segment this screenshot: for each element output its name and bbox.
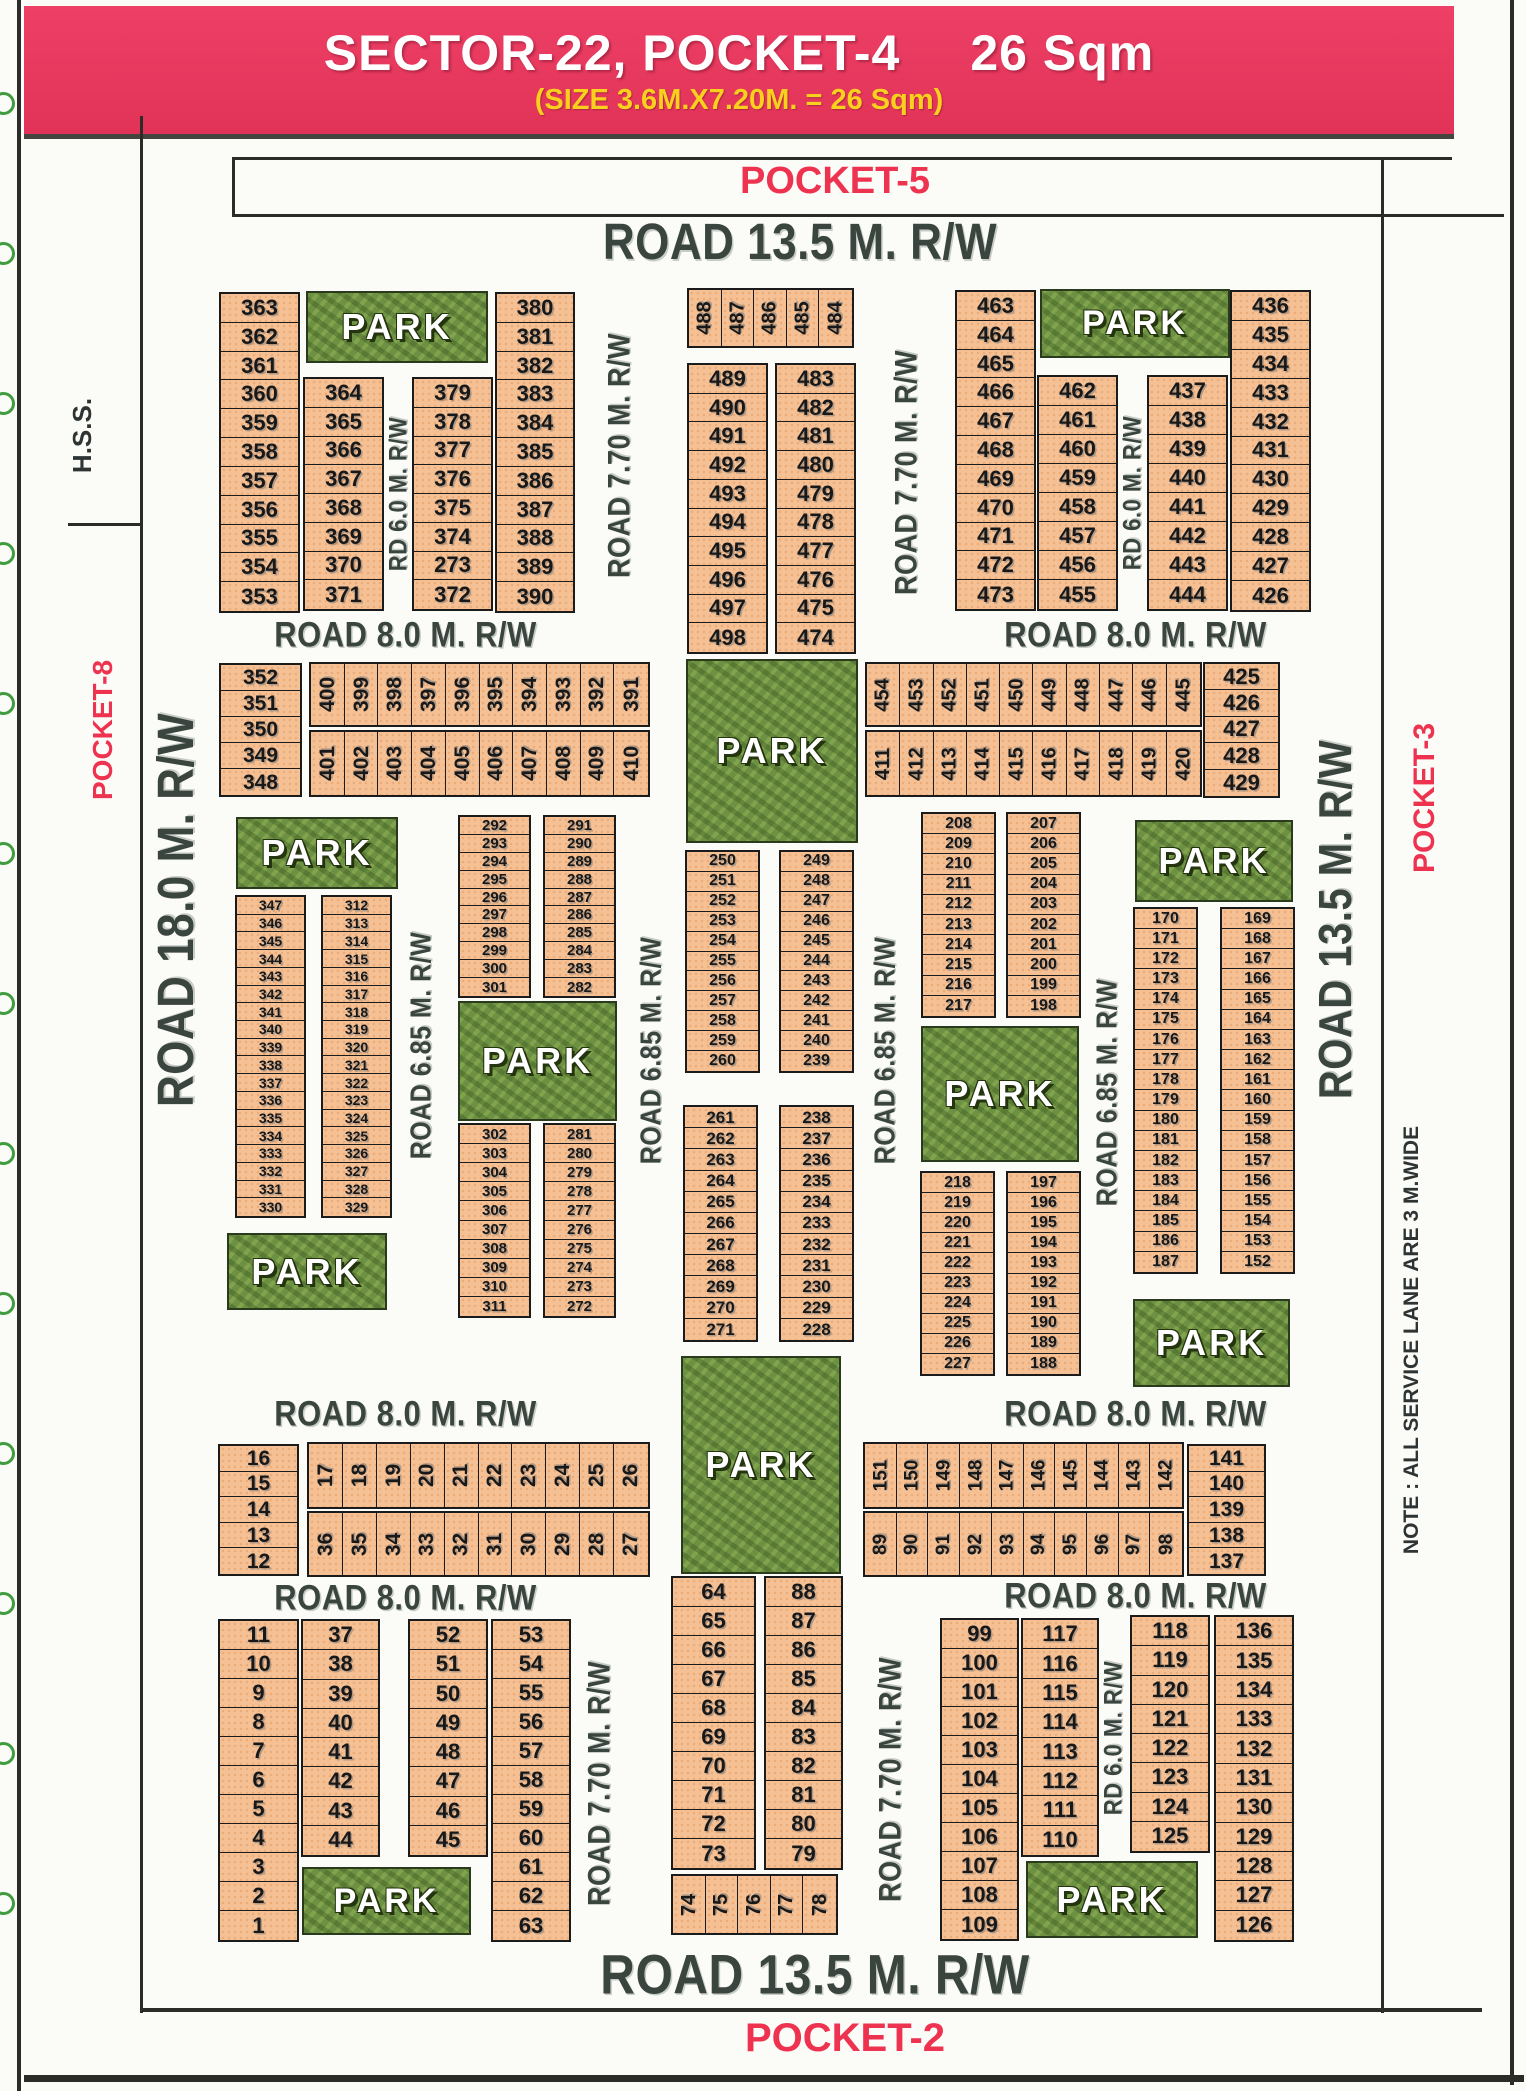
plot-block: 3473463453443433423413403393383373363353… [235, 895, 306, 1218]
plot-block: 89909192939495969798 [863, 1511, 1184, 1577]
plot-204: 204 [1008, 875, 1079, 895]
plot-number: 164 [1244, 1011, 1271, 1027]
plot-number: 415 [1006, 747, 1026, 780]
plot-number: 411 [873, 747, 893, 779]
plot-67: 67 [673, 1665, 754, 1694]
plot-110: 110 [1023, 1826, 1097, 1855]
plot-292: 292 [460, 817, 529, 835]
plot-number: 188 [1030, 1356, 1057, 1372]
plot-number: 179 [1152, 1092, 1179, 1108]
plot-number: 169 [1244, 911, 1271, 927]
plot-number: 9 [252, 1682, 264, 1704]
plot-number: 465 [977, 353, 1014, 375]
plot-409: 409 [581, 732, 615, 795]
plot-number: 336 [259, 1093, 282, 1107]
plot-number: 140 [1209, 1473, 1244, 1494]
plot-number: 186 [1152, 1233, 1179, 1249]
plot-number: 214 [945, 937, 972, 953]
plot-428: 428 [1232, 523, 1309, 552]
plot-219: 219 [922, 1193, 993, 1213]
plot-111: 111 [1023, 1796, 1097, 1825]
plot-number: 165 [1244, 991, 1271, 1007]
plot-59: 59 [493, 1795, 569, 1824]
plot-318: 318 [323, 1003, 390, 1021]
plot-417: 417 [1067, 732, 1100, 795]
plot-number: 243 [803, 973, 830, 989]
plot-452: 452 [934, 664, 967, 725]
plot-56: 56 [493, 1708, 569, 1737]
plot-number: 303 [482, 1146, 507, 1161]
plot-number: 442 [1169, 525, 1206, 547]
road-label: ROAD 8.0 M. R/W [238, 1578, 573, 1618]
plot-size-subtitle: (SIZE 3.6M.X7.20M. = 26 Sqm) [535, 84, 944, 117]
plot-444: 444 [1149, 580, 1226, 609]
park: PARK [302, 1867, 471, 1935]
plot-number: 99 [967, 1623, 991, 1645]
plot-74: 74 [673, 1876, 706, 1933]
plot-block: 250251252253254255256257258259260 [685, 850, 760, 1073]
plot-block: 117116115114113112111110 [1021, 1618, 1099, 1857]
plot-79: 79 [766, 1839, 841, 1868]
plot-number: 263 [706, 1151, 734, 1168]
plot-227: 227 [922, 1354, 993, 1374]
plot-number: 325 [345, 1129, 368, 1143]
plot-number: 426 [1252, 585, 1289, 607]
plot-number: 148 [966, 1460, 985, 1492]
plot-178: 178 [1135, 1070, 1196, 1090]
plot-number: 311 [482, 1299, 506, 1314]
plot-number: 157 [1244, 1153, 1271, 1169]
plot-213: 213 [923, 915, 994, 935]
plot-number: 112 [1042, 1770, 1078, 1792]
plot-412: 412 [900, 732, 933, 795]
plot-367: 367 [305, 465, 382, 494]
plot-number: 60 [519, 1827, 543, 1849]
plot-309: 309 [460, 1259, 529, 1278]
road-label-text: ROAD 13.5 M. R/W [600, 1943, 1029, 2006]
plot-278: 278 [545, 1182, 614, 1201]
plot-13: 13 [220, 1523, 297, 1549]
plot-number: 106 [961, 1826, 998, 1848]
plot-number: 150 [903, 1460, 922, 1492]
plot-number: 260 [709, 1053, 736, 1069]
plot-7: 7 [220, 1737, 297, 1766]
plot-number: 54 [519, 1653, 543, 1675]
plot-number: 189 [1030, 1335, 1057, 1351]
plot-number: 412 [906, 747, 926, 780]
plot-376: 376 [414, 465, 491, 494]
plot-138: 138 [1189, 1523, 1264, 1549]
plot-block: 436435434433432431430429428427426 [1230, 290, 1311, 612]
plot-392: 392 [581, 664, 615, 725]
plot-block: 281280279278277276275274273272 [543, 1123, 616, 1318]
plot-135: 135 [1216, 1646, 1292, 1675]
plot-102: 102 [942, 1707, 1017, 1736]
plot-number: 56 [519, 1711, 543, 1733]
plot-306: 306 [460, 1201, 529, 1220]
plot-number: 95 [1061, 1533, 1080, 1554]
plot-number: 117 [1042, 1623, 1078, 1645]
road-label-text: ROAD 8.0 M. R/W [274, 614, 536, 655]
plot-number: 286 [567, 907, 592, 922]
plot-number: 480 [797, 454, 834, 476]
park: PARK [458, 1001, 617, 1121]
plot-number: 356 [241, 499, 278, 521]
plot-number: 76 [744, 1893, 764, 1915]
plot-6: 6 [220, 1766, 297, 1795]
pocket-8-label: POCKET-8 [87, 660, 119, 800]
plot-block: 411412413414415416417418419420 [865, 730, 1202, 797]
plot-359: 359 [221, 409, 298, 438]
park-label: PARK [1082, 304, 1188, 343]
plot-297: 297 [460, 906, 529, 924]
plot-number: 47 [436, 1770, 460, 1792]
plot-483: 483 [777, 365, 854, 394]
plot-351: 351 [221, 691, 300, 717]
plot-352: 352 [221, 665, 300, 691]
plot-number: 7 [252, 1740, 264, 1762]
plot-379: 379 [414, 379, 491, 408]
plot-122: 122 [1132, 1734, 1208, 1763]
plot-number: 129 [1236, 1826, 1273, 1848]
plot-427: 427 [1232, 552, 1309, 581]
road-label: ROAD 7.70 M. R/W [597, 288, 642, 623]
plot-299: 299 [460, 942, 529, 960]
plot-38: 38 [303, 1650, 378, 1679]
plot-99: 99 [942, 1620, 1017, 1649]
plot-number: 449 [1040, 678, 1060, 711]
plot-number: 479 [797, 483, 834, 505]
plot-number: 287 [567, 890, 592, 905]
plot-252: 252 [687, 892, 758, 912]
plot-number: 215 [945, 957, 972, 973]
plot-280: 280 [545, 1144, 614, 1163]
plot-160: 160 [1222, 1090, 1293, 1110]
plot-number: 210 [945, 856, 972, 872]
plot-number: 343 [259, 969, 282, 983]
plot-402: 402 [345, 732, 379, 795]
park-label: PARK [1158, 840, 1269, 882]
plot-467: 467 [957, 407, 1034, 436]
plot-number: 419 [1140, 747, 1160, 780]
plot-number: 285 [567, 925, 592, 940]
plot-number: 418 [1106, 747, 1126, 780]
plot-number: 262 [706, 1130, 734, 1147]
plot-260: 260 [687, 1051, 758, 1071]
plot-block: 379378377376375374273372 [412, 377, 493, 611]
plot-315: 315 [323, 950, 390, 968]
plot-number: 234 [802, 1193, 830, 1210]
plot-144: 144 [1087, 1444, 1119, 1507]
plot-393: 393 [547, 664, 581, 725]
plot-number: 223 [944, 1275, 971, 1291]
plot-number: 221 [944, 1235, 971, 1251]
plot-498: 498 [689, 623, 766, 652]
plot-number: 284 [567, 943, 592, 958]
plot-block: 3123133143153163173183193203213223233243… [321, 895, 392, 1218]
plot-257: 257 [687, 991, 758, 1011]
plot-312: 312 [323, 897, 390, 915]
plot-374: 374 [414, 523, 491, 552]
plot-number: 83 [791, 1726, 815, 1748]
plot-398: 398 [378, 664, 412, 725]
plot-127: 127 [1216, 1881, 1292, 1910]
plot-443: 443 [1149, 551, 1226, 580]
plot-399: 399 [345, 664, 379, 725]
plot-287: 287 [545, 889, 614, 907]
plot-82: 82 [766, 1752, 841, 1781]
plot-number: 248 [803, 873, 830, 889]
plot-327: 327 [323, 1163, 390, 1181]
plot-number: 84 [791, 1697, 815, 1719]
plot-60: 60 [493, 1824, 569, 1853]
plot-15: 15 [220, 1472, 297, 1498]
plot-number: 352 [243, 667, 278, 688]
plot-number: 301 [482, 980, 507, 995]
plot-190: 190 [1008, 1314, 1079, 1334]
plot-445: 445 [1167, 664, 1200, 725]
plot-number: 439 [1169, 438, 1206, 460]
plot-number: 125 [1152, 1825, 1189, 1847]
plot-473: 473 [957, 580, 1034, 609]
plot-number: 238 [802, 1109, 830, 1126]
plot-472: 472 [957, 551, 1034, 580]
road-label-text: ROAD 7.70 M. R/W [889, 349, 925, 594]
plot-number: 239 [803, 1053, 830, 1069]
road-label: ROAD 13.5 M. R/W [1310, 672, 1364, 1167]
plot-number: 45 [436, 1829, 460, 1851]
plot-number: 257 [709, 993, 736, 1009]
plot-number: 413 [940, 747, 960, 780]
plot-186: 186 [1135, 1232, 1196, 1252]
plot-408: 408 [547, 732, 581, 795]
plot-number: 194 [1030, 1235, 1057, 1251]
plot-105: 105 [942, 1794, 1017, 1823]
plot-number: 377 [434, 439, 471, 461]
plot-number: 103 [961, 1739, 998, 1761]
plot-296: 296 [460, 889, 529, 907]
plot-number: 483 [797, 368, 834, 390]
plot-block: 1615141312 [218, 1444, 299, 1576]
plot-83: 83 [766, 1723, 841, 1752]
plot-number: 181 [1152, 1132, 1179, 1148]
plot-106: 106 [942, 1823, 1017, 1852]
plot-87: 87 [766, 1607, 841, 1636]
plot-470: 470 [957, 494, 1034, 523]
plot-61: 61 [493, 1853, 569, 1882]
plot-number: 308 [482, 1241, 507, 1256]
plot-304: 304 [460, 1163, 529, 1182]
road-label-text: RD 6.0 M. R/W [1098, 1661, 1128, 1815]
plot-number: 19 [383, 1464, 404, 1487]
plot-number: 416 [1040, 747, 1060, 780]
plot-number: 339 [259, 1040, 282, 1054]
plot-481: 481 [777, 422, 854, 451]
plot-428: 428 [1205, 743, 1278, 769]
plot-number: 231 [802, 1257, 830, 1274]
plot-224: 224 [922, 1294, 993, 1314]
plot-number: 364 [325, 382, 362, 404]
plot-number: 450 [1006, 678, 1026, 711]
plot-number: 43 [328, 1800, 352, 1822]
park-label: PARK [251, 1251, 362, 1293]
plot-438: 438 [1149, 406, 1226, 435]
plot-337: 337 [237, 1074, 304, 1092]
plot-block: 118119120121122123124125 [1130, 1615, 1210, 1853]
plot-number: 219 [944, 1195, 971, 1211]
plot-225: 225 [922, 1314, 993, 1334]
plot-133: 133 [1216, 1705, 1292, 1734]
plot-number: 491 [709, 425, 746, 447]
plot-205: 205 [1008, 854, 1079, 874]
plot-489: 489 [689, 365, 766, 394]
plot-number: 168 [1244, 931, 1271, 947]
plot-number: 187 [1152, 1254, 1179, 1270]
plot-number: 75 [711, 1893, 731, 1915]
plot-number: 264 [706, 1172, 734, 1189]
plot-291: 291 [545, 817, 614, 835]
road-label-text: ROAD 7.70 M. R/W [602, 333, 638, 578]
plot-number: 174 [1152, 991, 1179, 1007]
plot-number: 399 [351, 677, 372, 712]
road-label: RD 6.0 M. R/W [383, 377, 413, 610]
plot-number: 312 [345, 898, 368, 912]
plot-431: 431 [1232, 437, 1309, 466]
plot-199: 199 [1008, 976, 1079, 996]
plot-number: 11 [247, 1624, 270, 1646]
park-label: PARK [944, 1073, 1055, 1115]
plot-439: 439 [1149, 435, 1226, 464]
plot-358: 358 [221, 438, 298, 467]
plot-458: 458 [1039, 493, 1116, 522]
plot-298: 298 [460, 924, 529, 942]
plot-495: 495 [689, 537, 766, 566]
plot-237: 237 [781, 1128, 852, 1149]
plot-212: 212 [923, 895, 994, 915]
plot-number: 365 [325, 411, 362, 433]
plot-number: 334 [259, 1129, 282, 1143]
plot-number: 321 [345, 1058, 368, 1072]
plot-number: 22 [484, 1464, 505, 1487]
plot-459: 459 [1039, 464, 1116, 493]
plot-70: 70 [673, 1752, 754, 1781]
plot-195: 195 [1008, 1213, 1079, 1233]
plot-number: 417 [1073, 747, 1093, 780]
plot-number: 294 [482, 854, 507, 869]
plot-425: 425 [1205, 664, 1278, 690]
plot-268: 268 [685, 1255, 756, 1276]
plot-number: 341 [259, 1005, 282, 1019]
plot-number: 107 [961, 1855, 998, 1877]
plot-number: 426 [1223, 692, 1260, 714]
plot-number: 41 [328, 1741, 352, 1763]
road-label: ROAD 7.70 M. R/W [884, 288, 929, 656]
plot-number: 205 [1030, 856, 1057, 872]
plot-274: 274 [545, 1259, 614, 1278]
plot-number: 496 [709, 569, 746, 591]
plot-478: 478 [777, 509, 854, 538]
plot-166: 166 [1222, 969, 1293, 989]
plot-45: 45 [410, 1826, 486, 1855]
plot-number: 380 [517, 297, 554, 319]
plot-number: 59 [519, 1798, 543, 1820]
plot-348: 348 [221, 769, 300, 795]
plot-number: 258 [709, 1013, 736, 1029]
plot-1: 1 [220, 1911, 297, 1940]
plot-25: 25 [580, 1444, 614, 1507]
plot-area-label: 26 Sqm [970, 24, 1154, 82]
plot-369: 369 [305, 523, 382, 552]
plot-number: 242 [803, 993, 830, 1009]
plot-number: 52 [436, 1624, 460, 1646]
plot-number: 288 [567, 872, 592, 887]
plot-295: 295 [460, 871, 529, 889]
plot-241: 241 [781, 1011, 852, 1031]
plot-357: 357 [221, 467, 298, 496]
plot-279: 279 [545, 1163, 614, 1182]
plot-283: 283 [545, 960, 614, 978]
plot-number: 250 [709, 853, 736, 869]
plot-number: 474 [797, 627, 834, 649]
plot-246: 246 [781, 912, 852, 932]
plot-86: 86 [766, 1636, 841, 1665]
plot-block: 99100101102103104105106107108109 [940, 1618, 1019, 1941]
plot-53: 53 [493, 1621, 569, 1650]
plot-389: 389 [497, 553, 573, 582]
plot-271: 271 [685, 1319, 756, 1340]
road-label: RD 6.0 M. R/W [1099, 1619, 1127, 1857]
plot-63: 63 [493, 1911, 569, 1940]
plot-number: 354 [241, 556, 278, 578]
pocket-2-label: POCKET-2 [620, 2016, 1070, 2068]
plot-342: 342 [237, 986, 304, 1004]
plot-block: 1701711721731741751761771781791801811821… [1133, 907, 1198, 1274]
plot-number: 131 [1236, 1767, 1273, 1789]
plot-457: 457 [1039, 522, 1116, 551]
plot-455: 455 [1039, 580, 1116, 609]
plot-471: 471 [957, 523, 1034, 552]
plot-number: 110 [1042, 1829, 1078, 1851]
plot-number: 277 [567, 1203, 592, 1218]
plot-number: 305 [482, 1184, 507, 1199]
plot-number: 435 [1252, 324, 1289, 346]
plot-16: 16 [220, 1446, 297, 1472]
plot-381: 381 [497, 323, 573, 352]
plot-number: 447 [1106, 678, 1126, 711]
plot-332: 332 [237, 1163, 304, 1181]
plot-number: 344 [259, 952, 282, 966]
plot-number: 227 [944, 1356, 971, 1372]
plot-number: 283 [567, 961, 592, 976]
plot-294: 294 [460, 853, 529, 871]
plot-321: 321 [323, 1056, 390, 1074]
plot-28: 28 [580, 1513, 614, 1575]
plot-378: 378 [414, 408, 491, 437]
plot-206: 206 [1008, 834, 1079, 854]
plot-261: 261 [685, 1107, 756, 1128]
plot-42: 42 [303, 1767, 378, 1796]
plot-number: 459 [1059, 467, 1096, 489]
divider-line [17, 0, 21, 2091]
plot-233: 233 [781, 1213, 852, 1234]
plot-number: 240 [803, 1033, 830, 1049]
plot-236: 236 [781, 1149, 852, 1170]
plot-number: 492 [709, 454, 746, 476]
plot-number: 290 [567, 836, 592, 851]
road-label-text: ROAD 13.5 M. R/W [1311, 740, 1363, 1099]
plot-number: 66 [701, 1639, 725, 1661]
plot-number: 367 [325, 468, 362, 490]
